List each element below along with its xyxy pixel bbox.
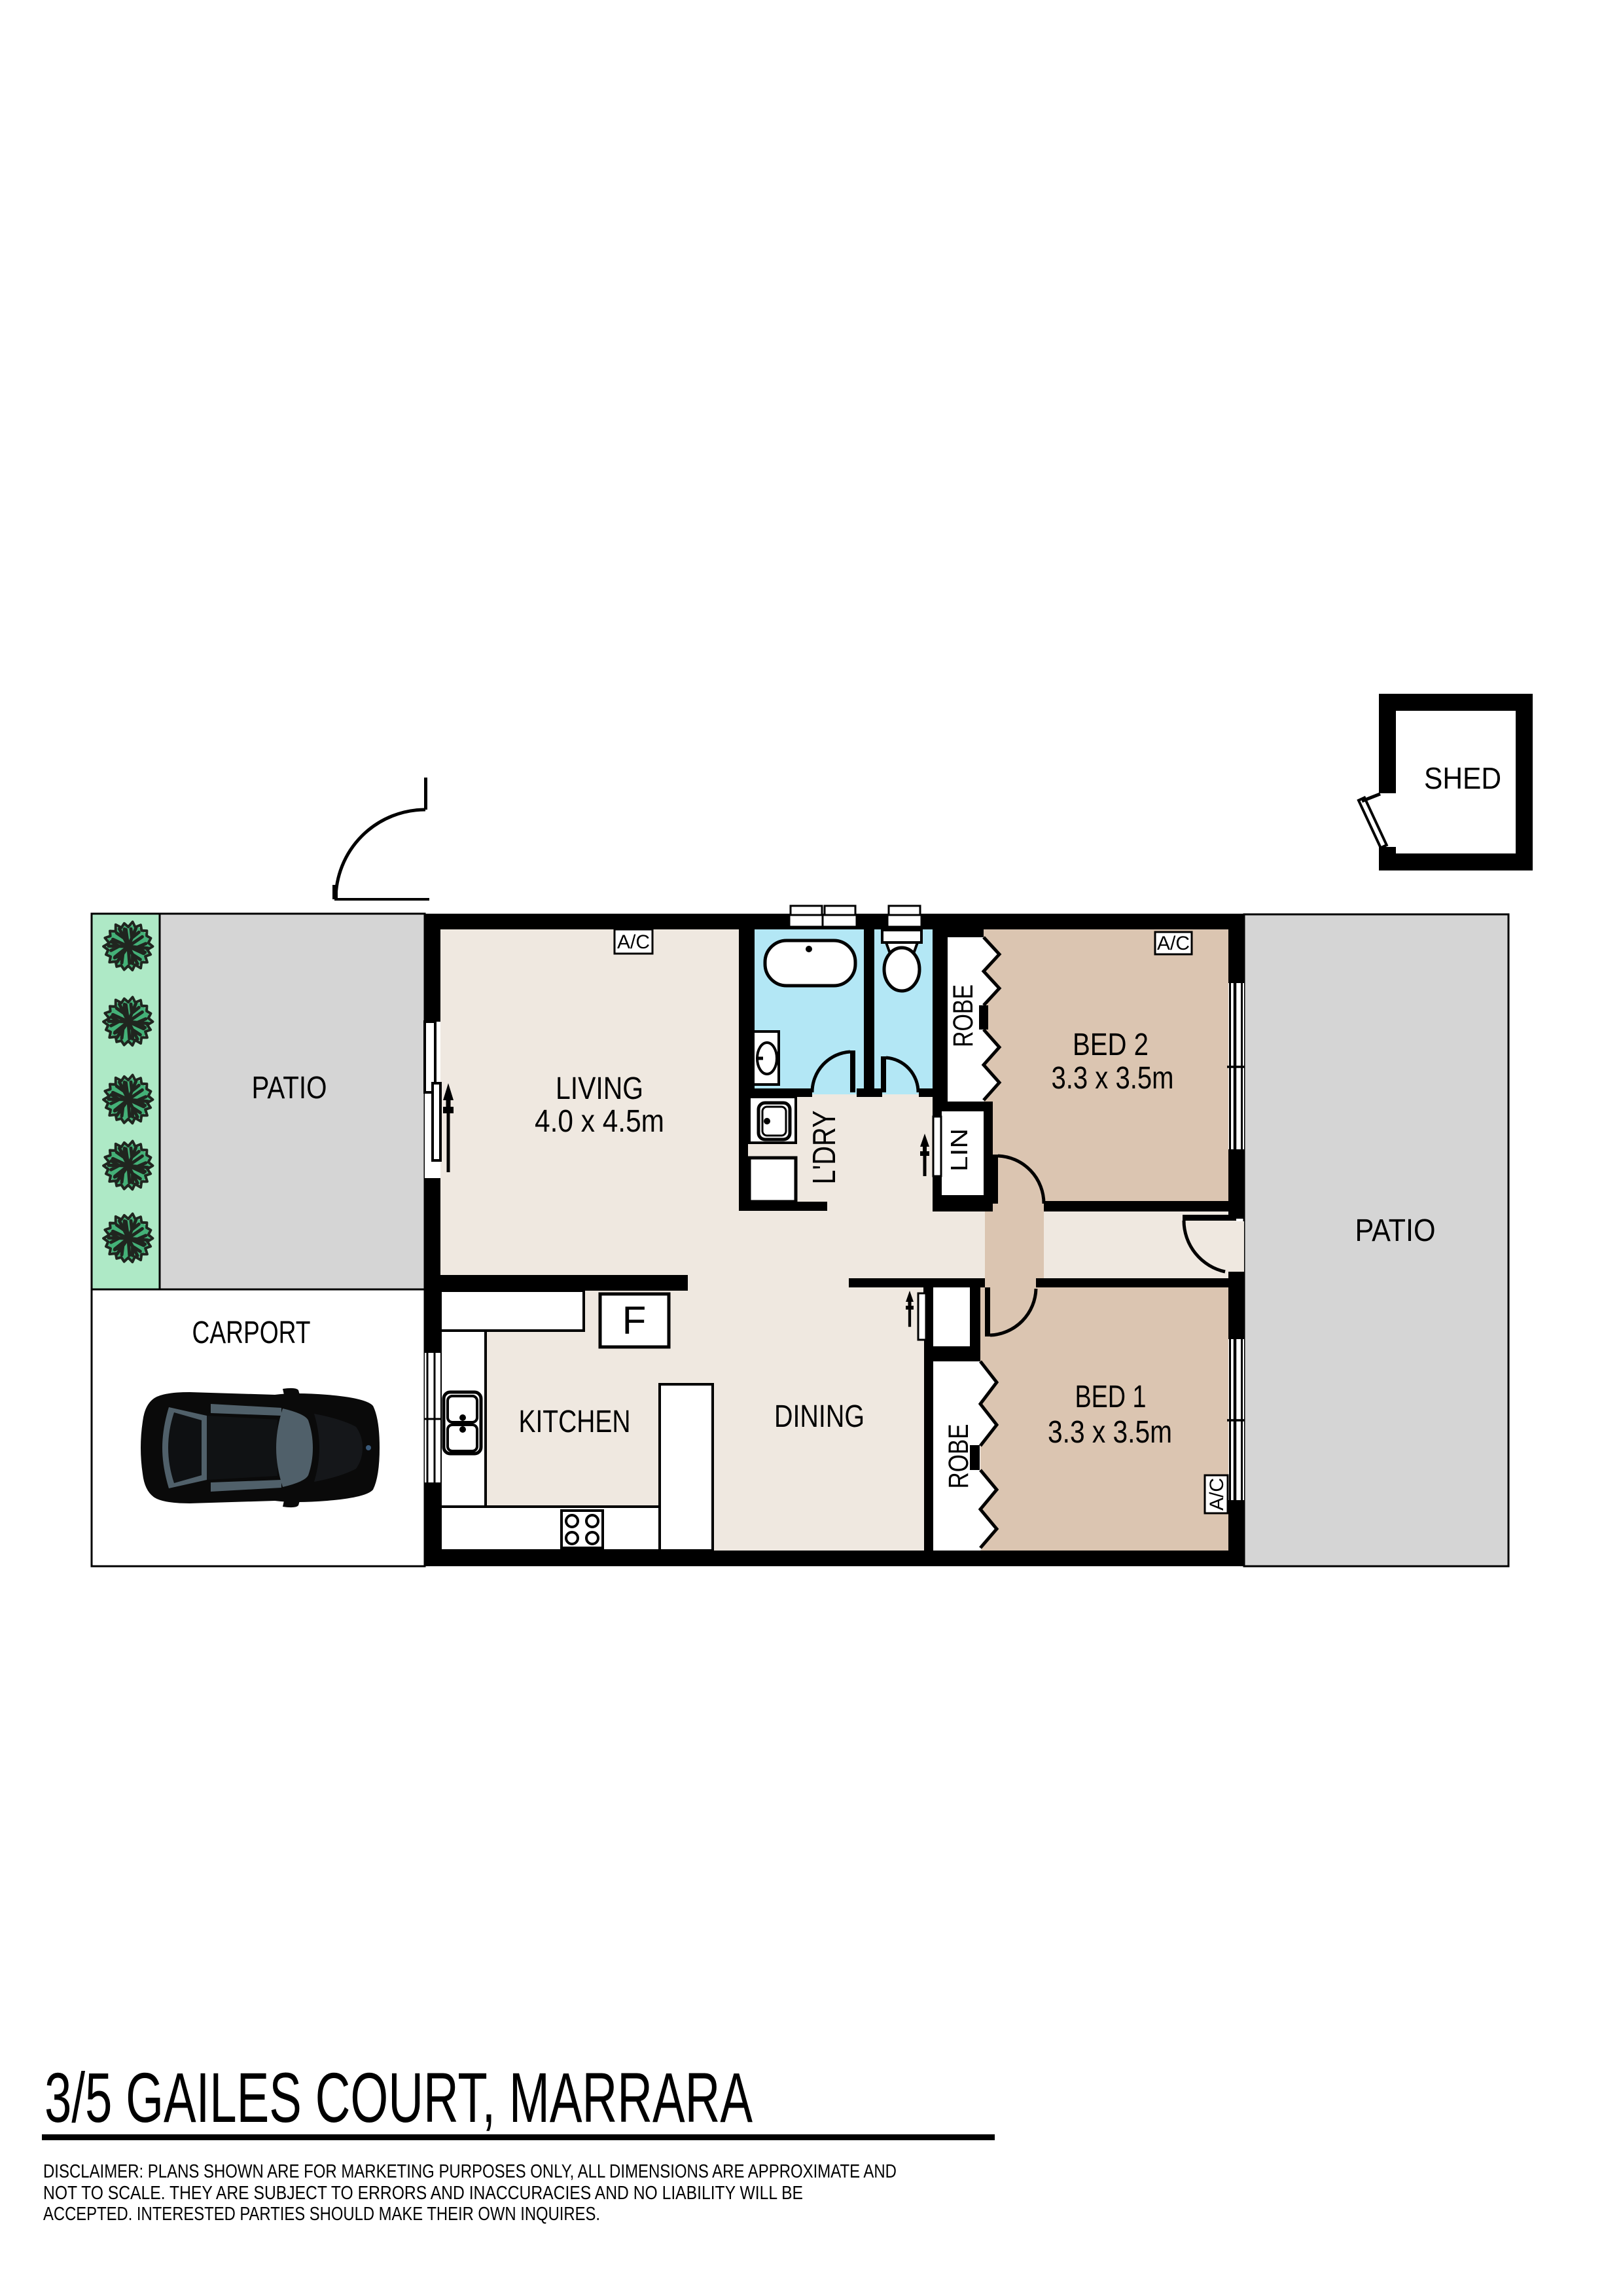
svg-text:3/5 GAILES COURT, MARRARA: 3/5 GAILES COURT, MARRARA — [45, 2058, 753, 2137]
svg-text:L'DRY: L'DRY — [807, 1111, 842, 1185]
svg-text:NOT TO SCALE. THEY ARE SUBJE: NOT TO SCALE. THEY ARE SUBJECT TO ERRORS… — [43, 2183, 803, 2204]
svg-text:4.0 x 4.5m: 4.0 x 4.5m — [535, 1104, 664, 1139]
svg-text:ROBE: ROBE — [943, 1424, 974, 1489]
svg-text:3.3 x 3.5m: 3.3 x 3.5m — [1052, 1061, 1174, 1096]
svg-text:A/C: A/C — [1157, 933, 1190, 954]
svg-text:SHED: SHED — [1424, 761, 1501, 795]
svg-text:LIN: LIN — [946, 1128, 972, 1172]
svg-text:KITCHEN: KITCHEN — [519, 1405, 631, 1439]
svg-text:DINING: DINING — [774, 1399, 865, 1434]
svg-text:DISCLAIMER: PLANS SHOWN ARE FO: DISCLAIMER: PLANS SHOWN ARE FOR MARKETIN… — [43, 2161, 897, 2182]
svg-text:CARPORT: CARPORT — [192, 1316, 311, 1350]
svg-text:ACCEPTED. INTERESTED PARTIES S: ACCEPTED. INTERESTED PARTIES SHOULD MAKE… — [43, 2204, 600, 2225]
svg-text:3.3 x 3.5m: 3.3 x 3.5m — [1048, 1415, 1172, 1450]
svg-text:ROBE: ROBE — [948, 984, 979, 1047]
svg-text:LIVING: LIVING — [556, 1071, 643, 1106]
svg-text:BED 2: BED 2 — [1073, 1028, 1149, 1062]
svg-text:A/C: A/C — [617, 931, 650, 953]
svg-text:BED 1: BED 1 — [1075, 1380, 1147, 1414]
svg-text:A/C: A/C — [1206, 1478, 1228, 1511]
svg-text:PATIO: PATIO — [1355, 1213, 1436, 1248]
svg-text:PATIO: PATIO — [252, 1071, 327, 1105]
svg-text:F: F — [622, 1299, 647, 1342]
